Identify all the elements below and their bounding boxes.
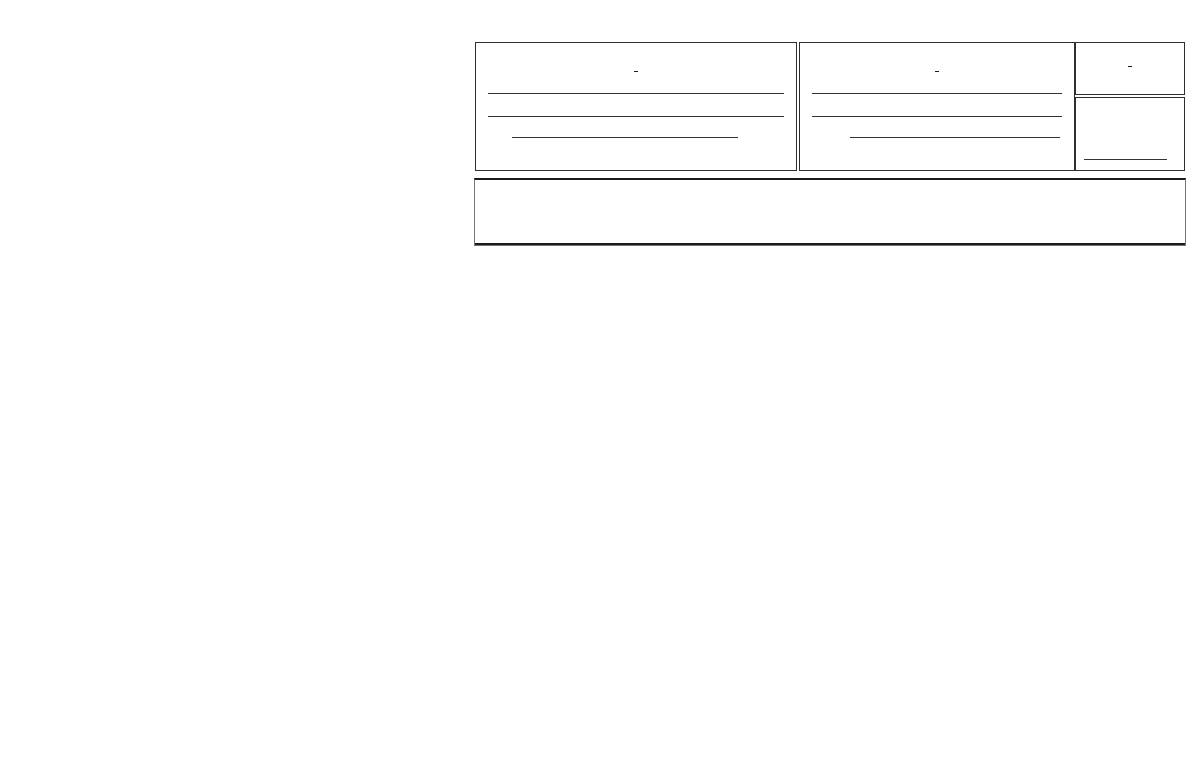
right-column bbox=[1075, 42, 1185, 171]
family-address-row bbox=[806, 106, 1062, 118]
family-name-row bbox=[806, 83, 1062, 95]
family-address-line bbox=[812, 115, 1062, 117]
owner-address-line-2 bbox=[512, 136, 738, 138]
voucher-heading bbox=[1076, 49, 1184, 67]
owner-name-row bbox=[482, 83, 784, 95]
family-address-line-2 bbox=[850, 136, 1060, 138]
owner-box bbox=[475, 42, 797, 171]
family-name-line bbox=[812, 92, 1062, 94]
bedroom-row bbox=[1084, 158, 1174, 161]
register-table bbox=[474, 178, 1186, 246]
owner-address-row bbox=[482, 106, 784, 118]
family-heading bbox=[800, 54, 1074, 72]
owner-name-line bbox=[488, 92, 784, 94]
table-header-row bbox=[475, 180, 1185, 245]
owner-heading-text bbox=[634, 59, 638, 72]
family-heading-text bbox=[935, 59, 939, 72]
header-boxes bbox=[475, 42, 1185, 171]
bedroom-line bbox=[1084, 158, 1167, 160]
voucher-heading-text bbox=[1128, 54, 1132, 67]
owner-address-line bbox=[488, 115, 784, 117]
form-sheet bbox=[475, 10, 1185, 655]
unit-size-box bbox=[1075, 97, 1185, 171]
owner-heading bbox=[476, 54, 796, 72]
family-box bbox=[799, 42, 1075, 171]
voucher-box bbox=[1075, 42, 1185, 95]
